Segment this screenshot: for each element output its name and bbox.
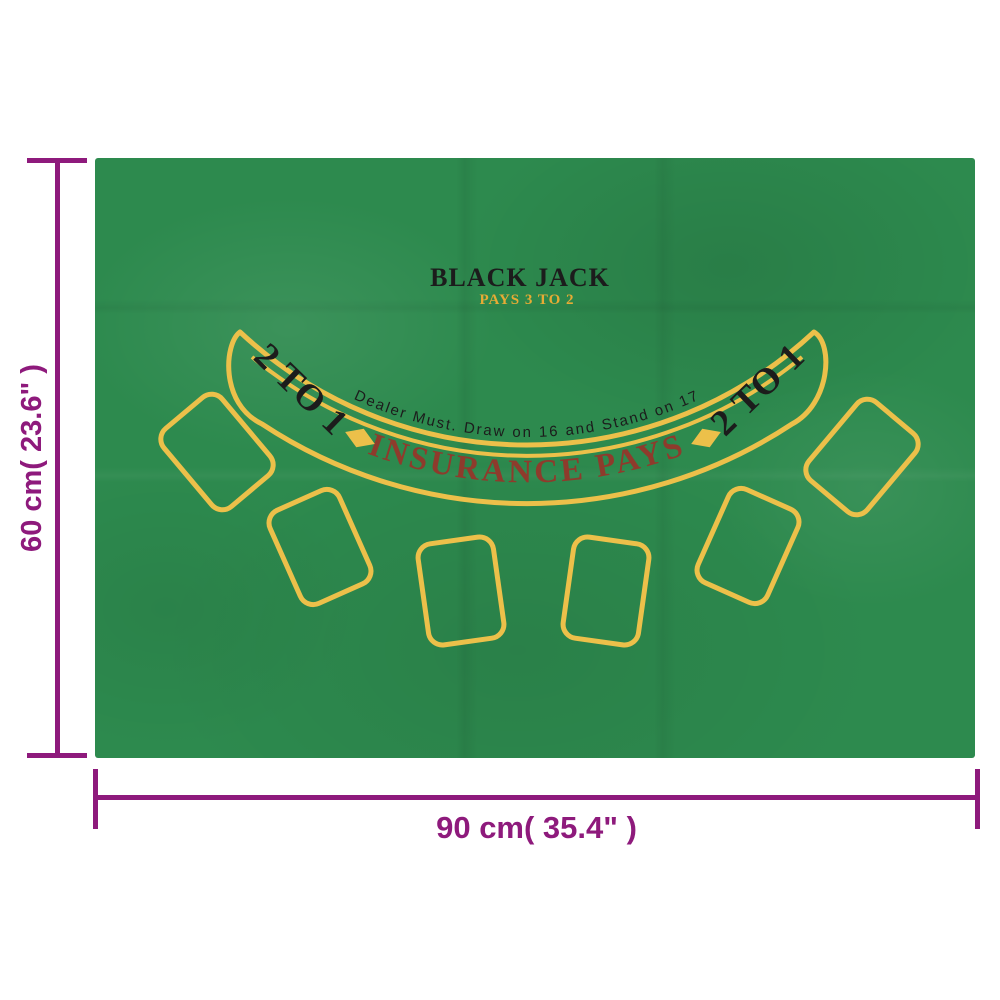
mat-markings: Dealer Must. Draw on 16 and Stand on 17 … (95, 158, 975, 758)
height-dimension-label: 60 cm( 23.6" ) (16, 358, 48, 558)
blackjack-title: BLACK JACK (380, 263, 660, 293)
width-dimension-label: 90 cm( 35.4" ) (93, 810, 980, 846)
card-spot (265, 485, 376, 609)
card-spot (416, 535, 505, 647)
card-spot (561, 535, 650, 647)
height-dimension-line (55, 158, 60, 758)
odds-left-text: 2 TO 1 (246, 336, 356, 444)
dealer-rule-textpath: Dealer Must. Draw on 16 and Stand on 17 (352, 387, 703, 441)
blackjack-felt-mat: Dealer Must. Draw on 16 and Stand on 17 … (95, 158, 975, 758)
product-image: 60 cm( 23.6" ) 90 cm( 35.4" ) Dealer Mus… (0, 0, 1000, 1000)
pays-subtitle: PAYS 3 TO 2 (427, 292, 627, 309)
width-dimension-line (93, 795, 980, 800)
odds-right-text: 2 TO 1 (703, 336, 813, 444)
height-dimension-cap-top (27, 158, 87, 163)
card-spot (155, 389, 279, 516)
card-spot (800, 394, 924, 521)
height-dimension-cap-bottom (27, 753, 87, 758)
card-spot (693, 484, 804, 608)
